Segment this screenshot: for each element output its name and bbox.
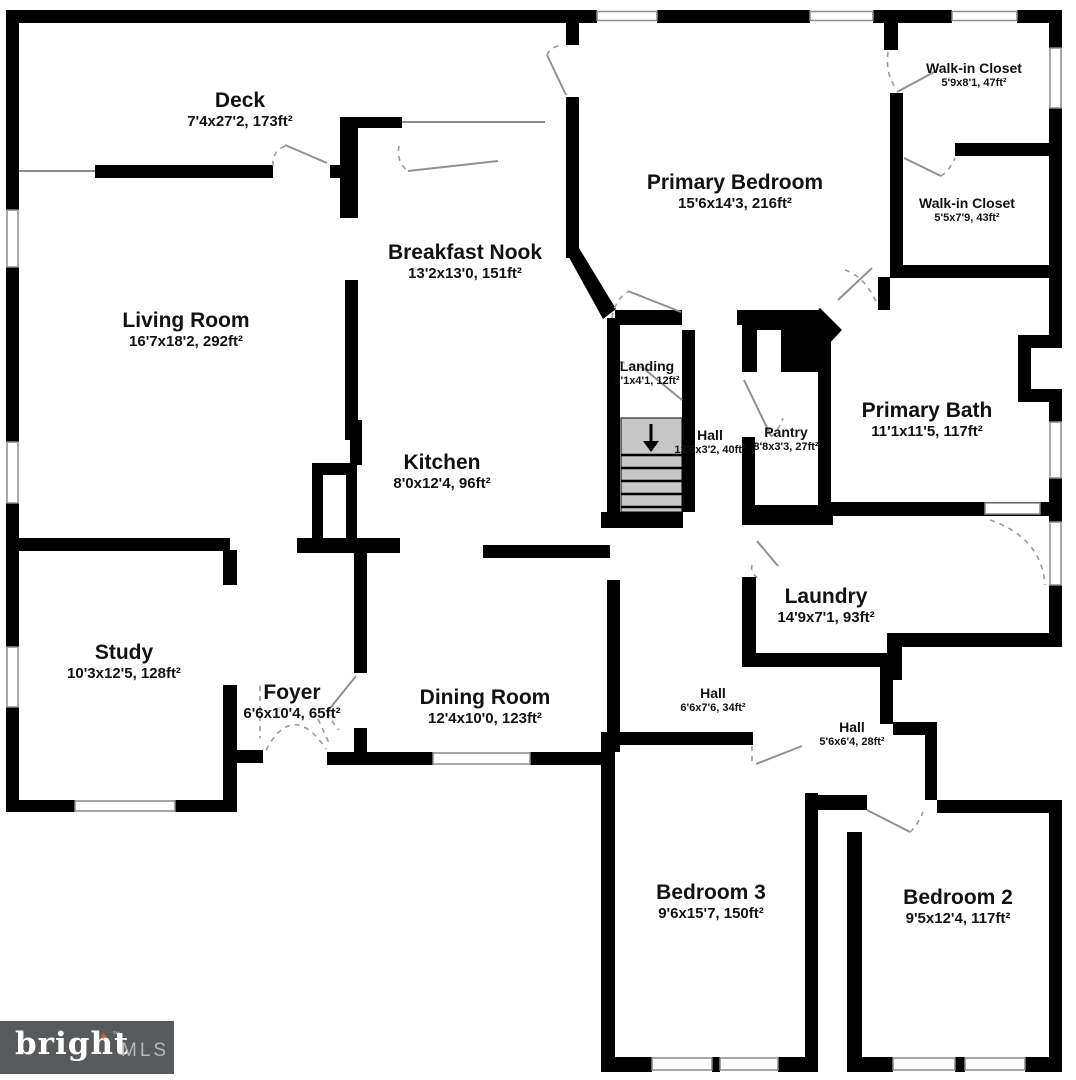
room-dims: 6'6x10'4, 65ft²	[243, 705, 340, 723]
room-label-walk-in-closet-1: Walk-in Closet 5'9x8'1, 47ft²	[926, 60, 1022, 90]
room-name: Dining Room	[420, 685, 551, 710]
room-name: Hall	[674, 427, 745, 444]
room-name: Primary Bedroom	[647, 170, 823, 195]
room-label-foyer: Foyer 6'6x10'4, 65ft²	[243, 680, 340, 723]
logo-trademark: ™	[112, 1030, 120, 1039]
room-name: Deck	[187, 88, 293, 113]
room-name: Living Room	[122, 308, 249, 333]
room-name: Walk-in Closet	[926, 60, 1022, 77]
room-name: Bedroom 3	[656, 880, 766, 905]
room-dims: 13'2x13'0, 151ft²	[388, 265, 542, 283]
room-dims: 6'6x7'6, 34ft²	[680, 702, 745, 715]
room-name: Primary Bath	[862, 398, 993, 423]
room-label-study: Study 10'3x12'5, 128ft²	[67, 640, 181, 683]
room-dims: 14'9x7'1, 93ft²	[777, 609, 874, 627]
room-label-bedroom-2: Bedroom 2 9'5x12'4, 117ft²	[903, 885, 1013, 928]
staircase	[621, 418, 682, 512]
room-dims: 9'5x12'4, 117ft²	[903, 910, 1013, 928]
room-label-deck: Deck 7'4x27'2, 173ft²	[187, 88, 293, 131]
room-dims: 10'3x12'5, 128ft²	[67, 665, 181, 683]
room-dims: 9'6x15'7, 150ft²	[656, 905, 766, 923]
room-label-hall-middle: Hall 6'6x7'6, 34ft²	[680, 685, 745, 715]
room-label-primary-bedroom: Primary Bedroom 15'6x14'3, 216ft²	[647, 170, 823, 213]
room-label-landing: Landing 3'1x4'1, 12ft²	[614, 358, 679, 388]
room-name: Study	[67, 640, 181, 665]
floor-plan-page: { "plan": { "title": "Floor plan", "room…	[0, 0, 1076, 1080]
room-label-laundry: Laundry 14'9x7'1, 93ft²	[777, 584, 874, 627]
bright-mls-logo: bright ✦ ™ MLS	[0, 1021, 174, 1074]
room-label-pantry: Pantry 8'8x3'3, 27ft²	[753, 424, 818, 454]
room-name: Laundry	[777, 584, 874, 609]
room-dims: 12'6x3'2, 40ft²	[674, 444, 745, 457]
room-dims: 12'4x10'0, 123ft²	[420, 710, 551, 728]
logo-star-icon: ✦	[99, 1030, 108, 1043]
room-dims: 8'0x12'4, 96ft²	[393, 475, 490, 493]
room-label-bedroom-3: Bedroom 3 9'6x15'7, 150ft²	[656, 880, 766, 923]
room-dims: 7'4x27'2, 173ft²	[187, 113, 293, 131]
logo-mls-text: MLS	[121, 1040, 169, 1062]
room-name: Foyer	[243, 680, 340, 705]
room-name: Landing	[614, 358, 679, 375]
room-label-hall-upper: Hall 12'6x3'2, 40ft²	[674, 427, 745, 457]
room-name: Kitchen	[393, 450, 490, 475]
room-dims: 5'9x8'1, 47ft²	[926, 77, 1022, 90]
room-label-hall-lower: Hall 5'6x6'4, 28ft²	[819, 719, 884, 749]
room-label-breakfast-nook: Breakfast Nook 13'2x13'0, 151ft²	[388, 240, 542, 283]
room-dims: 16'7x18'2, 292ft²	[122, 333, 249, 351]
room-dims: 3'1x4'1, 12ft²	[614, 375, 679, 388]
room-dims: 8'8x3'3, 27ft²	[753, 441, 818, 454]
room-name: Hall	[819, 719, 884, 736]
room-label-walk-in-closet-2: Walk-in Closet 5'5x7'9, 43ft²	[919, 195, 1015, 225]
room-name: Pantry	[753, 424, 818, 441]
room-label-dining-room: Dining Room 12'4x10'0, 123ft²	[420, 685, 551, 728]
room-name: Hall	[680, 685, 745, 702]
room-label-living-room: Living Room 16'7x18'2, 292ft²	[122, 308, 249, 351]
room-name: Bedroom 2	[903, 885, 1013, 910]
room-name: Breakfast Nook	[388, 240, 542, 265]
room-name: Walk-in Closet	[919, 195, 1015, 212]
room-dims: 11'1x11'5, 117ft²	[862, 423, 993, 441]
room-dims: 15'6x14'3, 216ft²	[647, 195, 823, 213]
room-dims: 5'6x6'4, 28ft²	[819, 736, 884, 749]
room-label-kitchen: Kitchen 8'0x12'4, 96ft²	[393, 450, 490, 493]
room-label-primary-bath: Primary Bath 11'1x11'5, 117ft²	[862, 398, 993, 441]
room-dims: 5'5x7'9, 43ft²	[919, 212, 1015, 225]
